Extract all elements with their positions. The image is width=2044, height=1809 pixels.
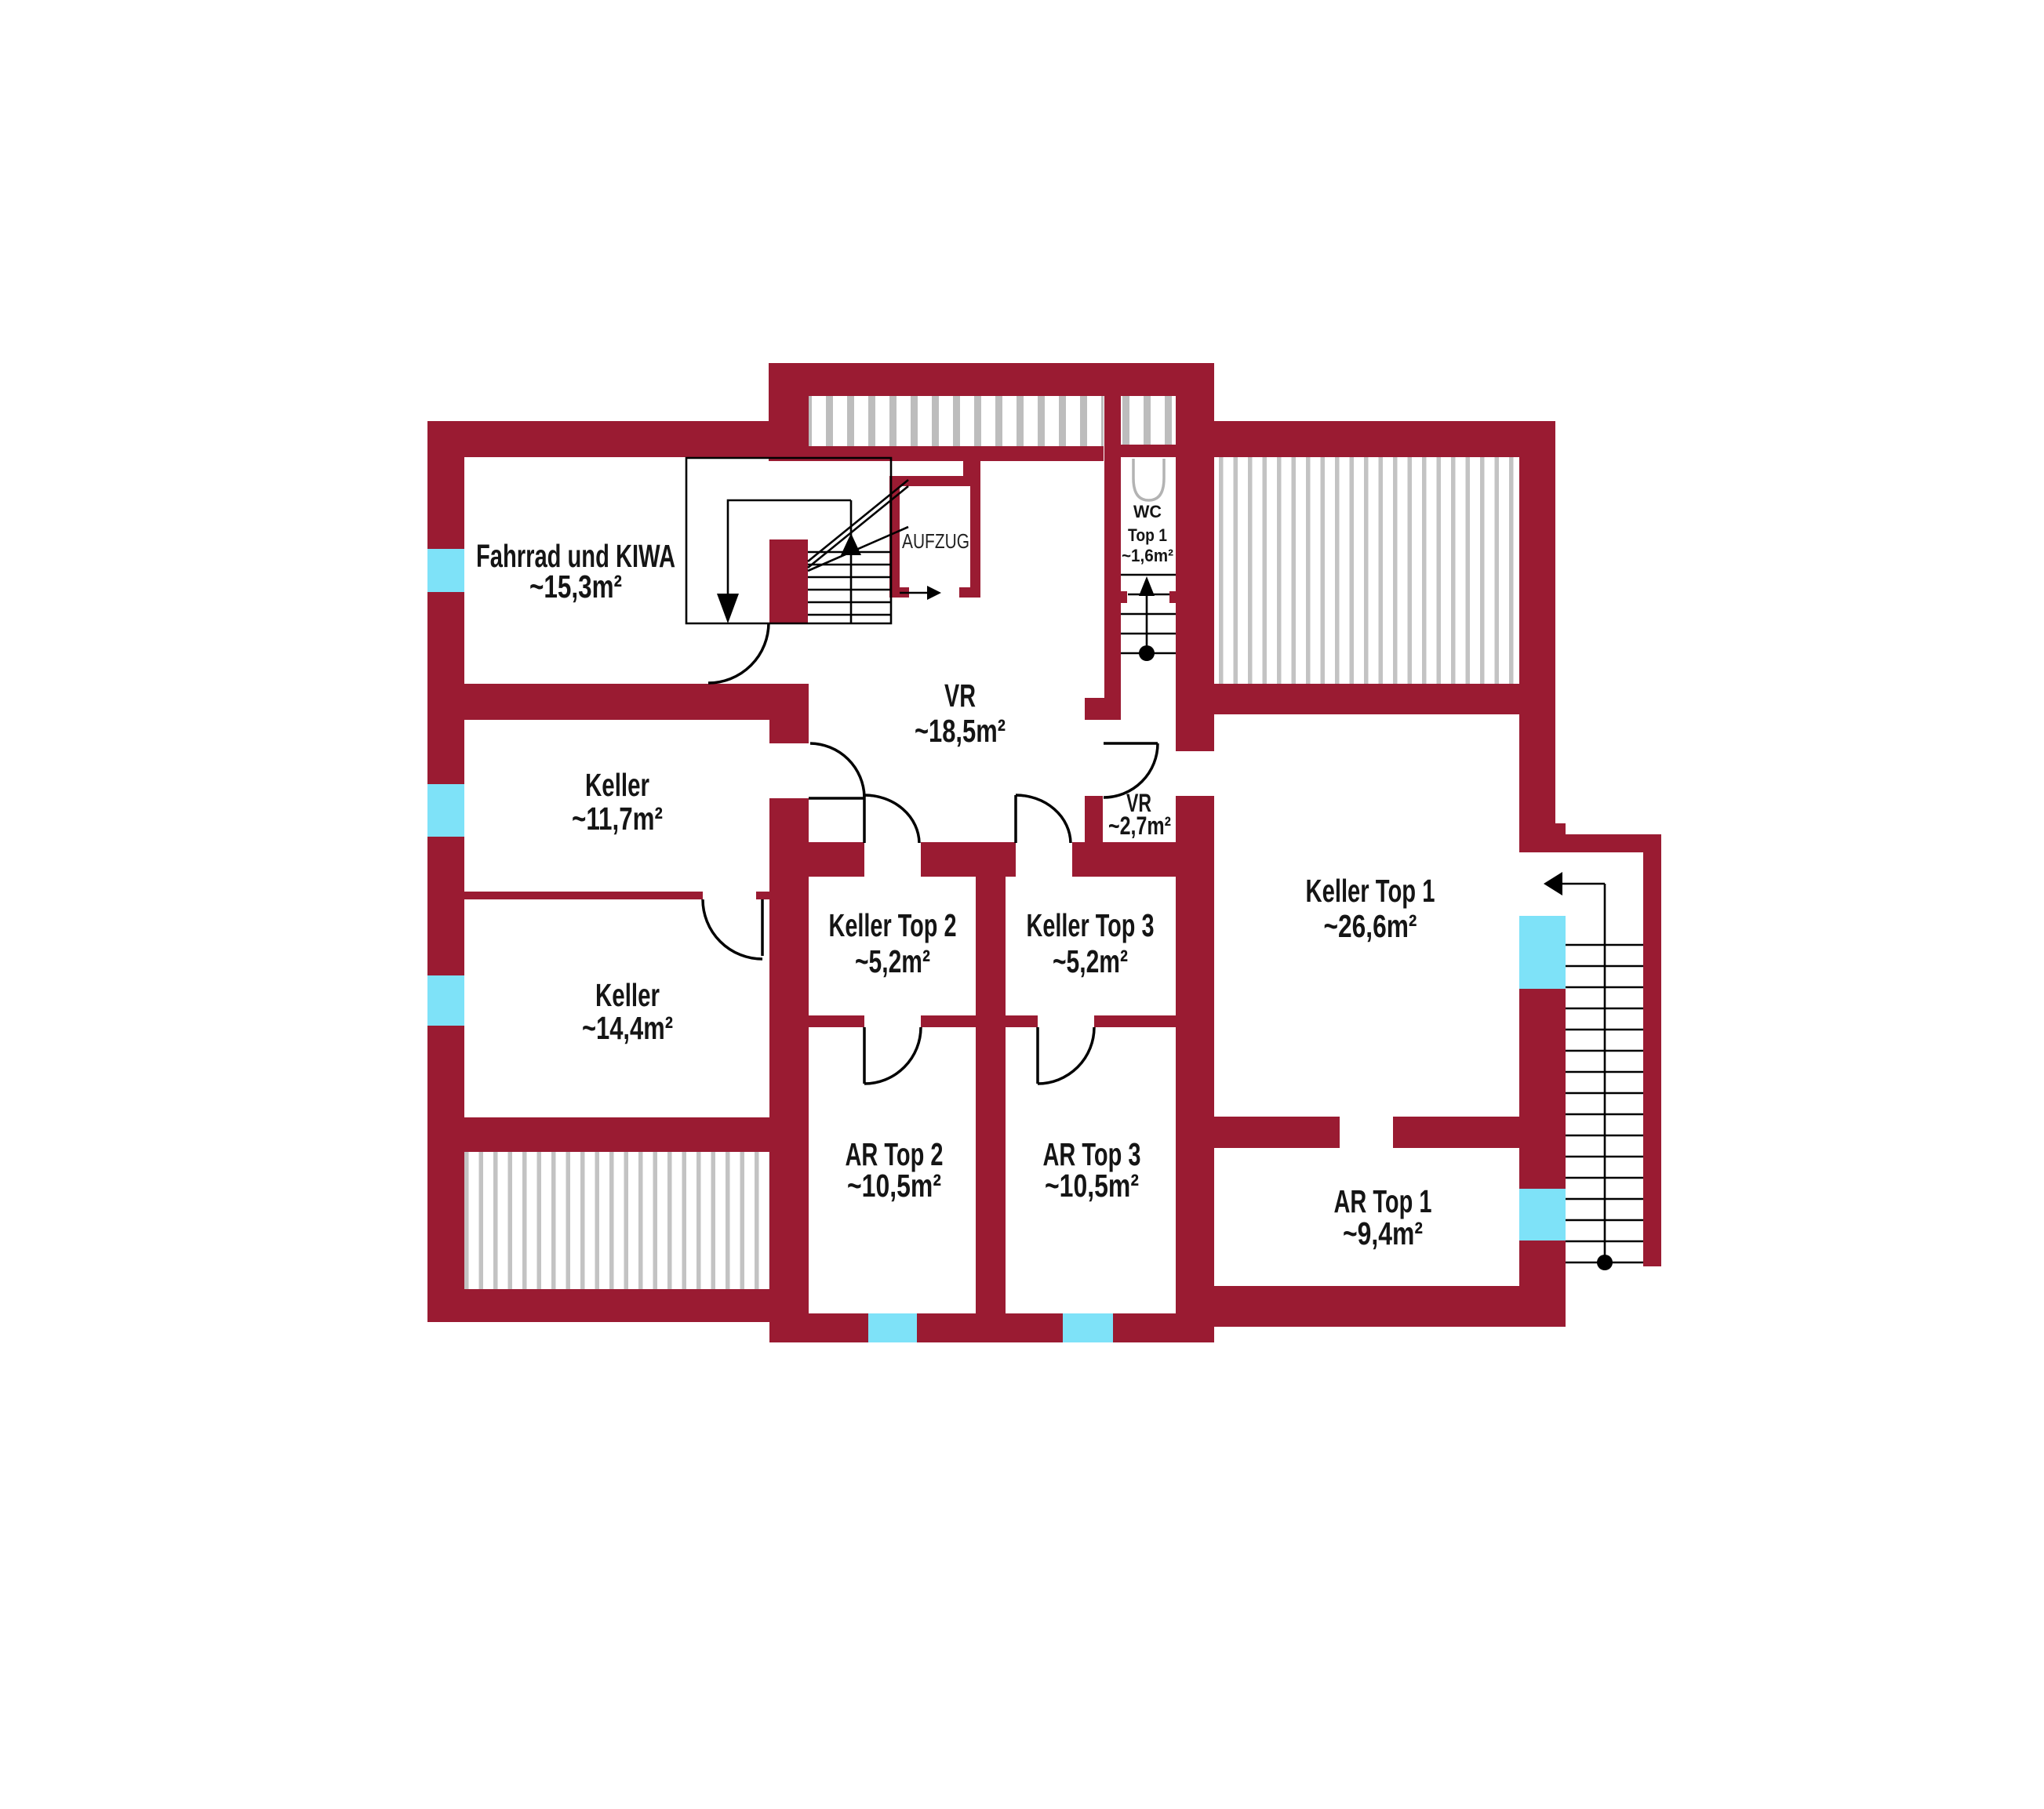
svg-text:~10,5m²: ~10,5m² [1045,1168,1139,1204]
svg-text:Keller Top 2: Keller Top 2 [829,907,957,943]
svg-text:~5,2m²: ~5,2m² [855,943,930,979]
svg-text:AUFZUG: AUFZUG [902,529,969,553]
svg-text:~10,5m²: ~10,5m² [847,1168,941,1204]
svg-text:AR Top 1: AR Top 1 [1334,1183,1432,1219]
svg-text:Keller Top 3: Keller Top 3 [1027,907,1155,943]
svg-text:VR: VR [944,677,976,714]
svg-text:~14,4m²: ~14,4m² [582,1010,673,1046]
svg-text:Top 1: Top 1 [1128,525,1167,545]
svg-text:Keller: Keller [595,977,660,1013]
svg-text:~1,6m²: ~1,6m² [1122,546,1173,565]
svg-text:~15,3m²: ~15,3m² [529,568,622,605]
svg-text:~26,6m²: ~26,6m² [1324,908,1417,944]
svg-text:Keller Top 1: Keller Top 1 [1306,873,1435,909]
svg-text:~2,7m²: ~2,7m² [1108,812,1171,840]
svg-text:~11,7m²: ~11,7m² [572,801,663,837]
svg-text:~5,2m²: ~5,2m² [1053,943,1128,979]
svg-text:Keller: Keller [585,767,649,803]
svg-text:~9,4m²: ~9,4m² [1343,1215,1423,1251]
svg-text:~18,5m²: ~18,5m² [915,713,1006,749]
svg-text:WC: WC [1133,502,1162,521]
